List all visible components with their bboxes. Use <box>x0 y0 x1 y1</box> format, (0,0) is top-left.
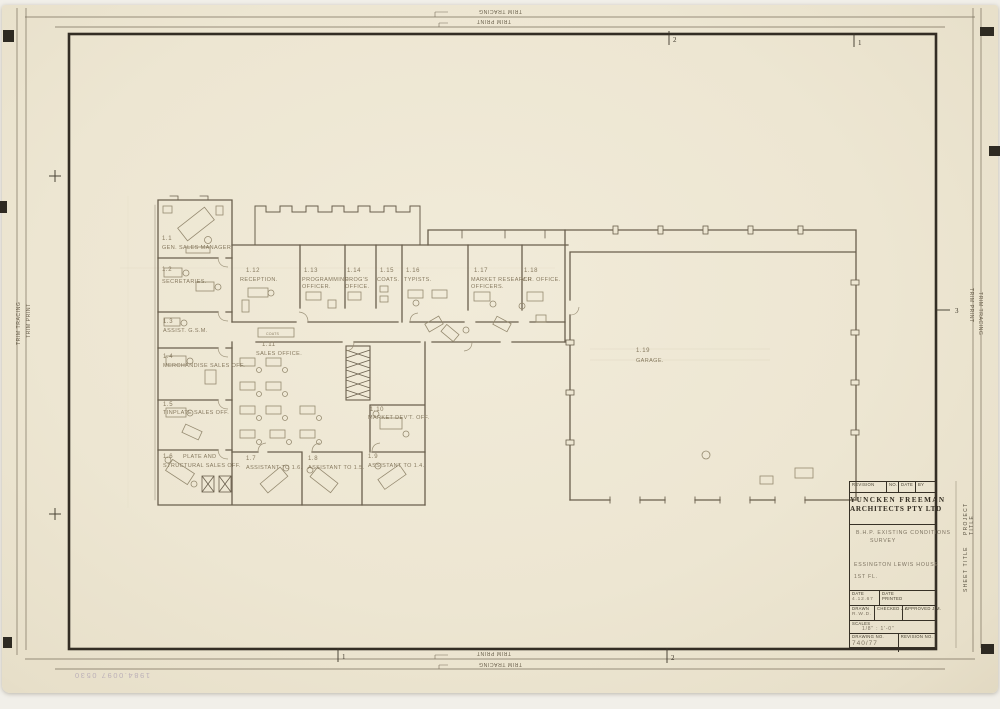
room-label-name: OFFICERS. <box>471 284 504 290</box>
room-label-name: ASSISTANT TO 1.4. <box>368 463 425 469</box>
date-row: DATE 4.12.67 DATE PRINTED <box>850 591 935 606</box>
room-label-number: 1.3 <box>163 319 173 325</box>
room-label-name: ASSISTANT TO 1.5. <box>308 465 365 471</box>
drawn-cell: DRAWN R.W.D. <box>850 606 875 620</box>
trim-tracing-right-label: TRIM TRACING <box>977 292 983 335</box>
room-label-name: PROG'S <box>345 277 368 283</box>
room-label-name: RECEPTION. <box>240 277 278 283</box>
room-label-number: 1.13 <box>304 268 318 274</box>
firm-name-line2: ARCHITECTS PTY LTD <box>850 505 935 513</box>
approved-cell: APPROVED J.M. <box>903 606 943 620</box>
room-label-number: 1.14 <box>347 268 361 274</box>
revision-header: REVISION <box>850 482 887 492</box>
border-frame <box>69 34 936 649</box>
room-label-number: 1.6 <box>163 454 173 460</box>
furniture <box>163 206 813 493</box>
room-label-number: 1.17 <box>474 268 488 274</box>
room-label-number: 1.16 <box>406 268 420 274</box>
project-title-side-label: PROJECT TITLE <box>963 487 975 535</box>
sheet-title-text-line2: 1ST FL. <box>854 574 878 580</box>
sheet-title-text-line1: ESSINGTON LEWIS HOUSE <box>854 562 939 568</box>
project-title-text-line2: SURVEY <box>870 538 896 544</box>
stairs <box>346 346 370 400</box>
fold-number-bottom-left: 1 <box>342 653 346 661</box>
room-label-name: OFFICER. <box>302 284 331 290</box>
revision-no-cell: REVISION NO. <box>899 634 935 652</box>
date-printed-label: DATE PRINTED <box>882 592 904 602</box>
room-label-name: MERCHANDISE SALES OFF. <box>163 363 245 369</box>
room-label-number: 1.2 <box>162 267 172 273</box>
room-label-name: GEN. SALES MANAGER. <box>162 245 233 251</box>
fold-number-right-middle: 3 <box>955 307 959 315</box>
trim-lines <box>17 8 981 669</box>
room-label-name: TINPLATE SALES OFF. <box>163 410 229 416</box>
title-block: REVISION NO. DATE BY YUNCKEN FREEMAN ARC… <box>849 481 936 648</box>
revision-row: REVISION NO. DATE BY <box>850 482 935 493</box>
room-label-name: PLATE AND <box>183 454 216 460</box>
project-title-text-line1: B.H.P. EXISTING CONDITIONS <box>856 530 951 536</box>
checked-cell: CHECKED J.C. <box>875 606 903 620</box>
room-label-number: 1.7 <box>246 456 256 462</box>
wall-pilasters <box>566 226 859 445</box>
trim-labels: TRIM TRACING TRIM PRINT TRIM PRINT TRIM … <box>16 8 983 667</box>
drawn-row: DRAWN R.W.D. CHECKED J.C. APPROVED J.M. <box>850 606 935 621</box>
room-label-number: 1.5 <box>163 402 173 408</box>
room-label-number: 1.8 <box>308 456 318 462</box>
room-label-number: 1.10 <box>370 407 384 413</box>
room-label-number: 1.12 <box>246 268 260 274</box>
date-value: 4.12.67 <box>852 597 877 602</box>
sheet-title-side-label: SHEET TITLE <box>963 546 969 592</box>
trim-tracing-bottom-label: TRIM TRACING <box>479 661 522 667</box>
date-printed-cell: DATE PRINTED <box>880 591 935 605</box>
fold-number-top-center: 2 <box>673 36 677 44</box>
trim-print-left-label: TRIM PRINT <box>26 303 32 338</box>
scanned-page: TRIM TRACING TRIM PRINT TRIM PRINT TRIM … <box>0 0 1000 709</box>
accession-number: 1984.0097 0530 <box>32 671 150 680</box>
room-label-name: TYPISTS. <box>404 277 432 283</box>
trim-tracing-top-label: TRIM TRACING <box>479 8 522 14</box>
room-label-name: STRUCTURAL SALES OFF. <box>163 463 241 469</box>
room-label-number: 1.15 <box>380 268 394 274</box>
duct-shafts <box>202 476 231 492</box>
room-label-name: GARAGE. <box>636 358 664 364</box>
pencil-guides <box>120 196 770 508</box>
room-label-name: ASSISTANT TO 1.6. <box>246 465 303 471</box>
room-label-name: PROGRAMMING <box>302 277 349 283</box>
room-label-name: MARKET DEV'T. OFF. <box>368 415 430 421</box>
coats-cabinet-label: COATS <box>266 332 280 336</box>
drawing-no-value: 740/77 <box>852 640 896 647</box>
room-label-name: ASSIST. G.S.M. <box>163 328 208 334</box>
trim-print-top-label: TRIM PRINT <box>476 18 511 24</box>
drawing-no-row: DRAWING NO. 740/77 REVISION NO. <box>850 634 935 652</box>
room-label-number: 1.19 <box>636 348 650 354</box>
room-label-number: 1.11 <box>262 342 276 348</box>
revision-date-header: DATE <box>899 482 916 492</box>
room-label-number: 1.1 <box>162 236 172 242</box>
trim-tracing-left-label: TRIM TRACING <box>16 302 22 345</box>
room-label-number: 1.4 <box>163 354 173 360</box>
fold-number-bottom-center: 2 <box>671 654 675 662</box>
revision-no-header: NO. <box>887 482 899 492</box>
room-label-name: COATS. <box>377 277 400 283</box>
title-area: B.H.P. EXISTING CONDITIONS SURVEY ESSING… <box>850 525 935 591</box>
firm-name: YUNCKEN FREEMAN ARCHITECTS PTY LTD <box>850 496 935 525</box>
revision-by-header: BY <box>916 482 935 492</box>
room-label-name: SALES OFFICE. <box>256 351 302 357</box>
drawn-value: R.W.D. <box>852 612 872 617</box>
scales-value: 1/8" : 1'-0" <box>862 626 894 632</box>
room-label-name: OFFICE. <box>345 284 370 290</box>
registration-crosses <box>49 170 61 520</box>
trim-print-right-label: TRIM PRINT <box>968 288 974 323</box>
room-label-name: M.R. OFFICE. <box>521 277 561 283</box>
date-cell: DATE 4.12.67 <box>850 591 880 605</box>
room-label-name: SECRETARIES. <box>162 279 207 285</box>
room-label-number: 1.9 <box>368 454 378 460</box>
room-labels: 1.1GEN. SALES MANAGER.1.2SECRETARIES.1.3… <box>162 236 664 471</box>
trim-print-bottom-label: TRIM PRINT <box>476 650 511 656</box>
room-label-number: 1.18 <box>524 268 538 274</box>
firm-name-line1: YUNCKEN FREEMAN <box>850 496 935 504</box>
fold-number-top-right: 1 <box>858 39 862 47</box>
drawing-no-cell: DRAWING NO. 740/77 <box>850 634 899 652</box>
scales-row: SCALES 1/8" : 1'-0" <box>850 621 935 634</box>
